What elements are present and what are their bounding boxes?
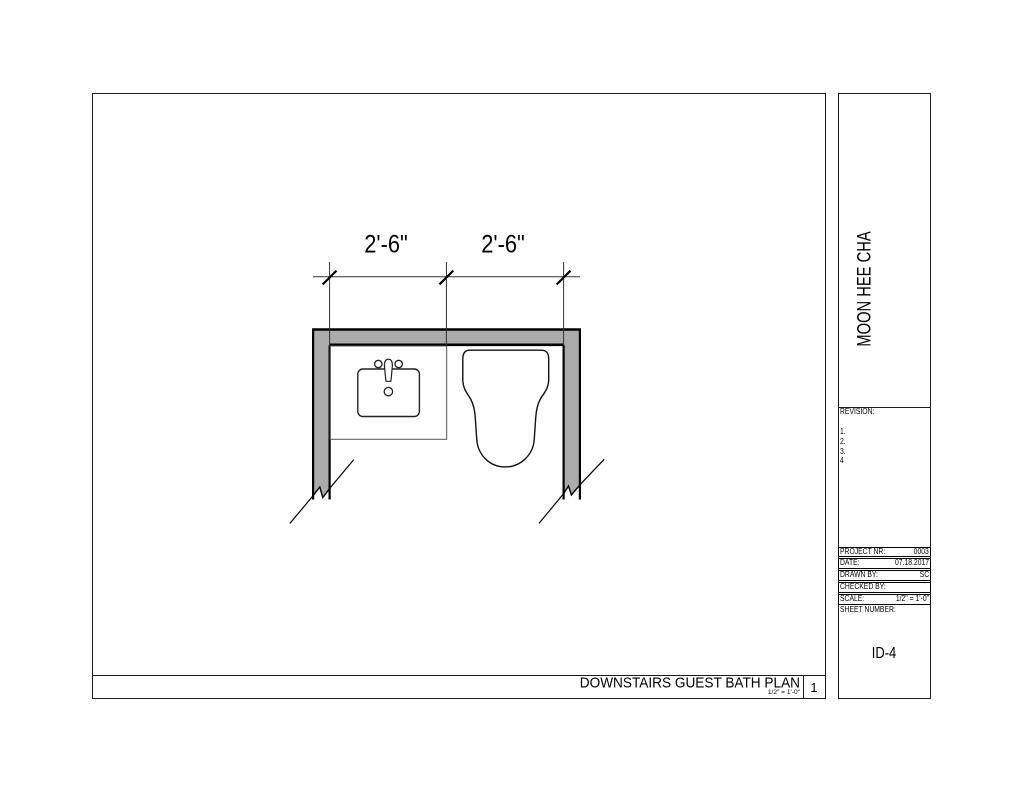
svg-text:2'-6": 2'-6" (364, 230, 408, 257)
svg-text:2'-6": 2'-6" (481, 230, 525, 257)
